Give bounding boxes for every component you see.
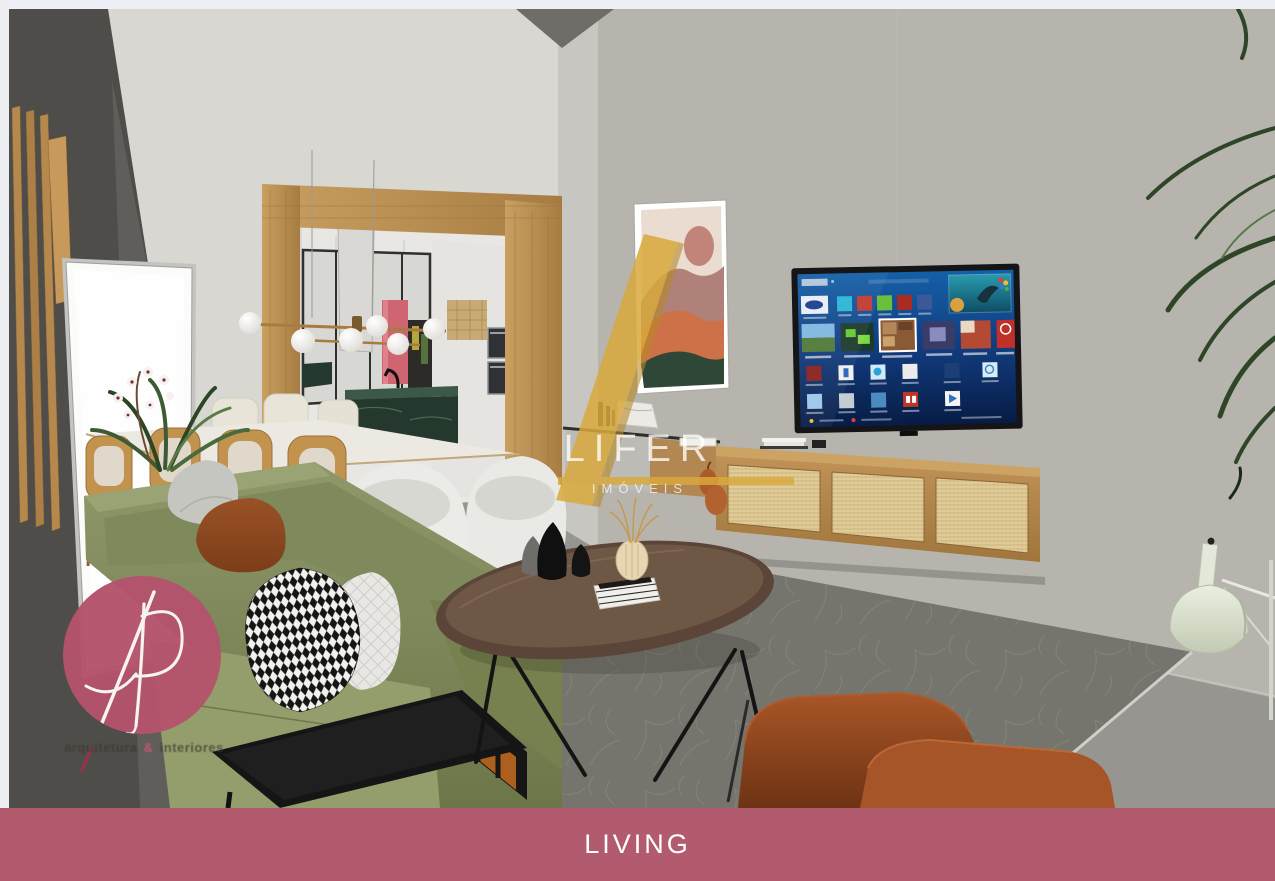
logo-tagline-right: interiores — [160, 740, 224, 755]
architect-logo: arquitetura & interiores — [52, 570, 237, 785]
room-label: LIVING — [584, 829, 691, 860]
logo-tagline-left: arquitetura — [64, 740, 137, 755]
tv-video-thumbnail — [948, 274, 1011, 313]
tv — [791, 264, 1023, 439]
logo-tagline: arquitetura & interiores — [34, 740, 254, 755]
logo-tagline-amp: & — [142, 740, 156, 755]
render-image: LIFER IMÓVEIS arquitetura & interiores L… — [0, 0, 1275, 881]
title-banner: LIVING — [0, 808, 1275, 881]
